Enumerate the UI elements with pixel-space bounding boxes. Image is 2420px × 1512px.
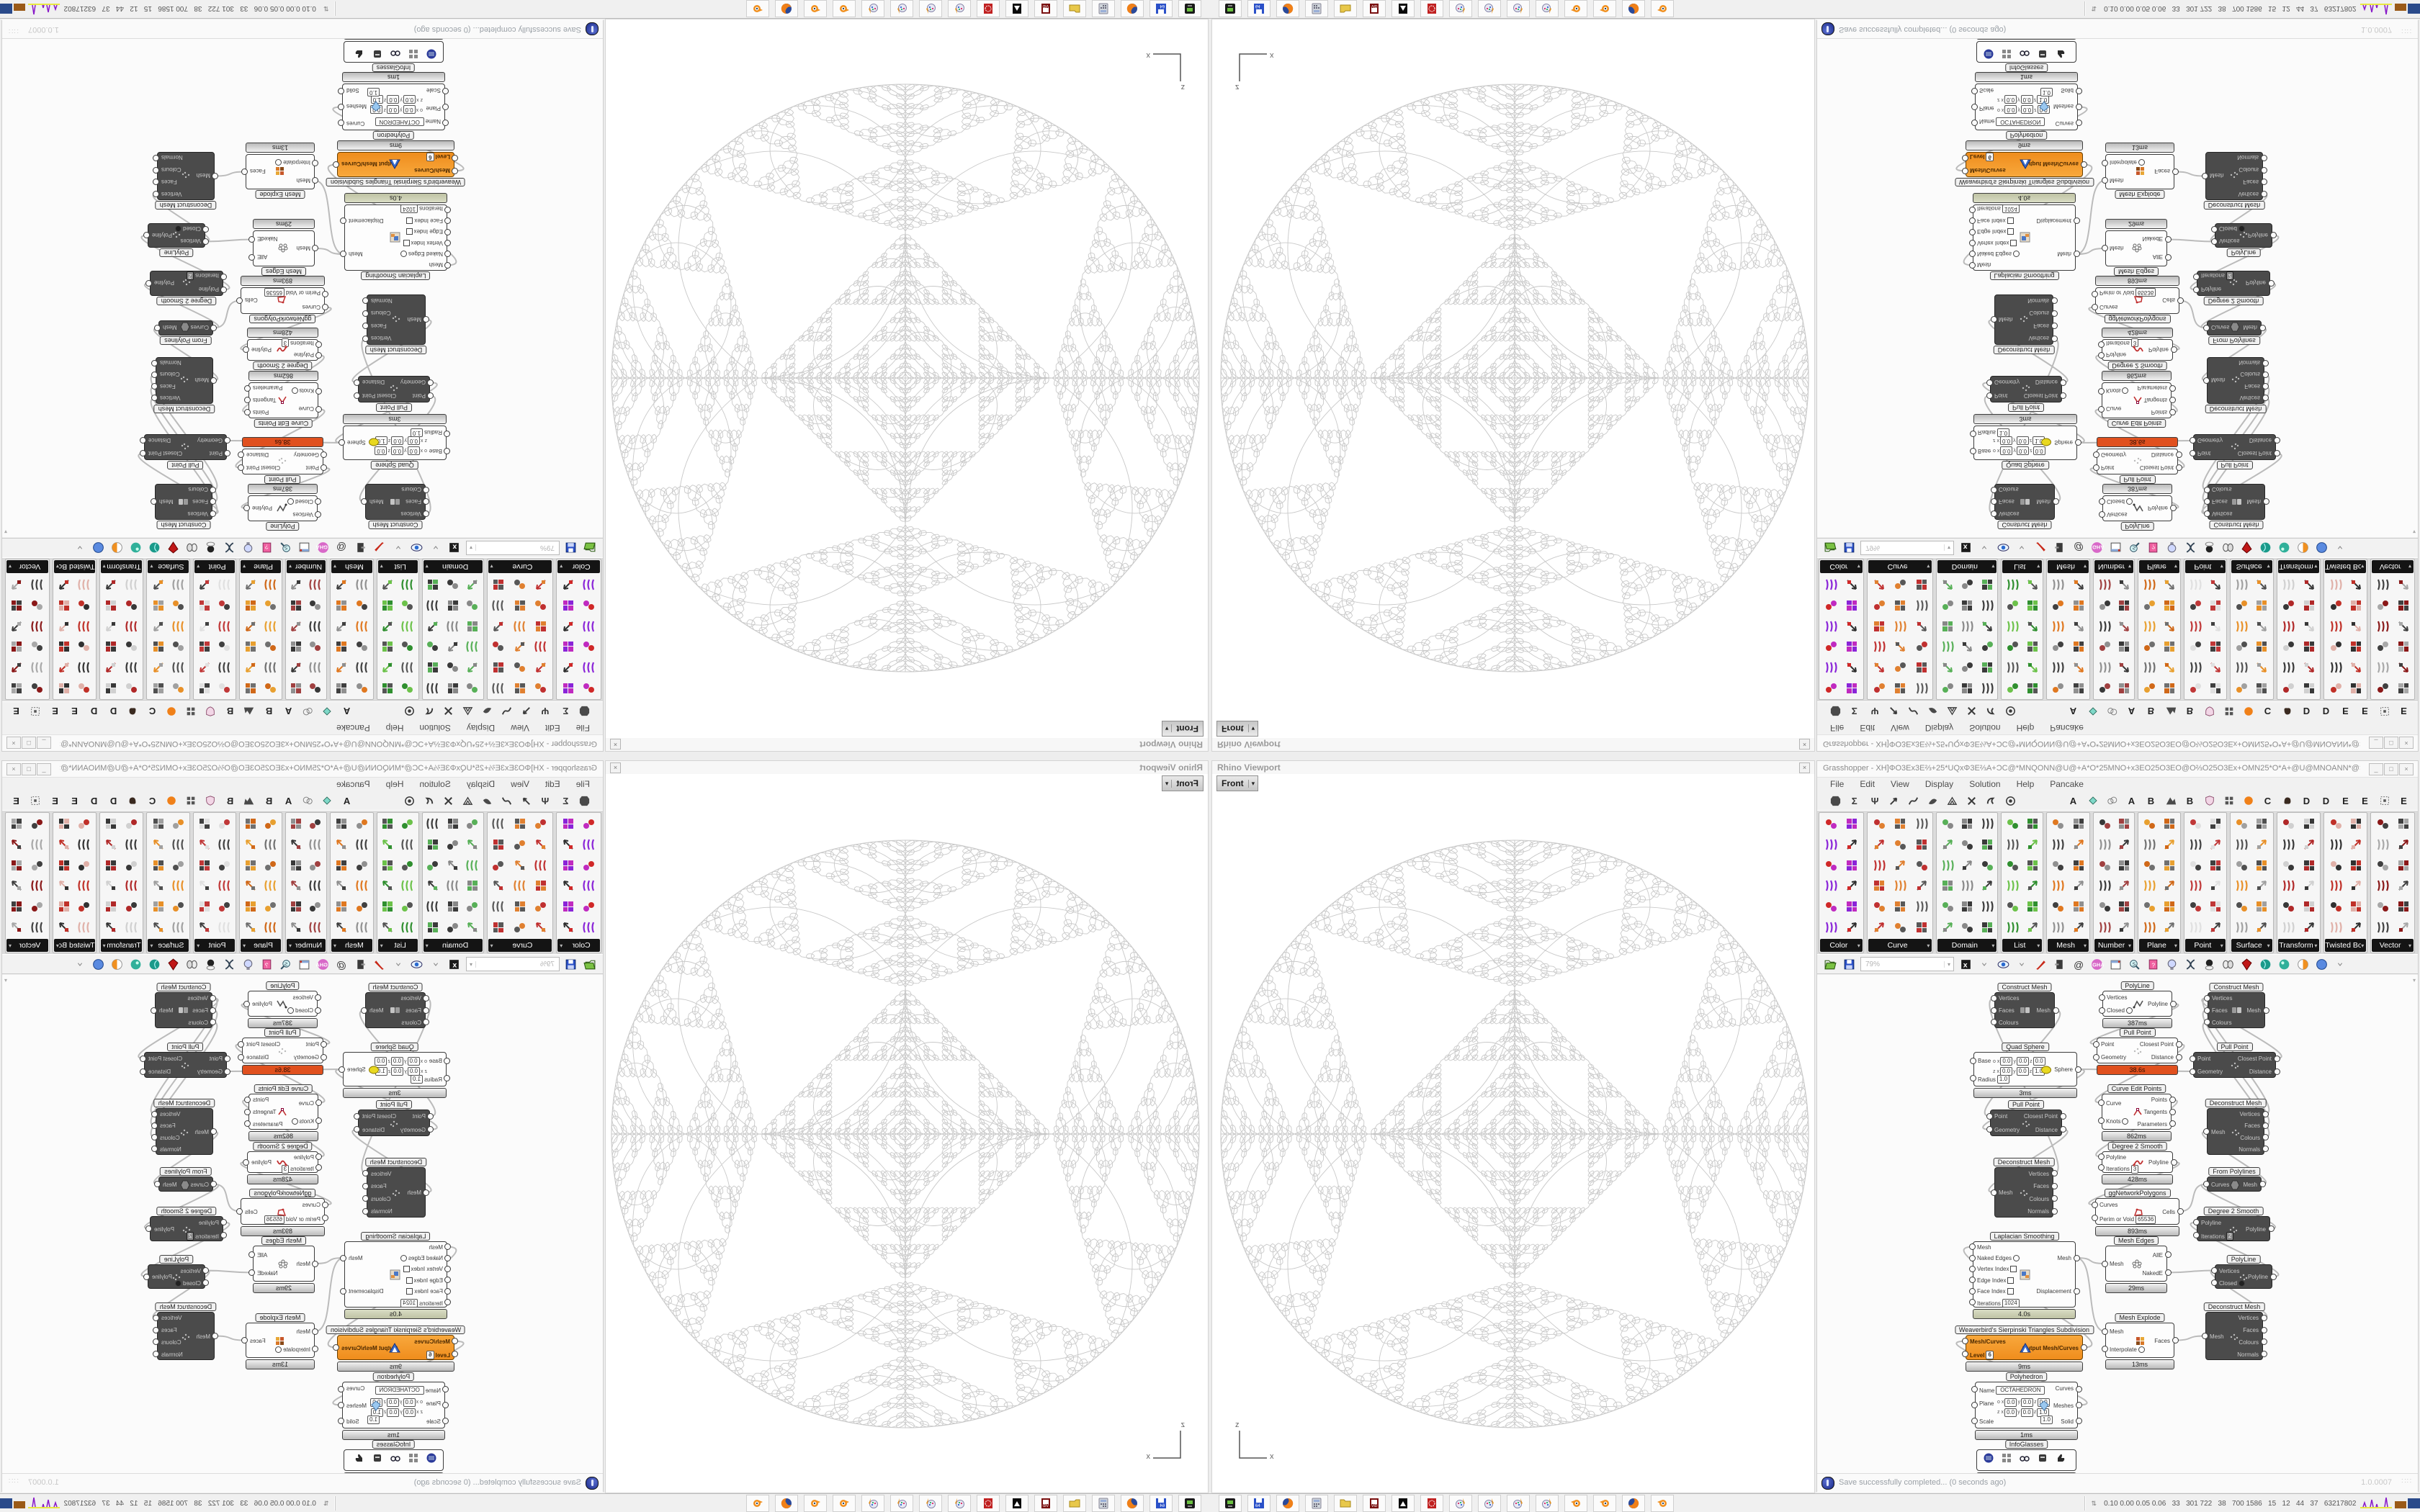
tab-plugin-13[interactable]: D <box>2316 793 2336 809</box>
section-label[interactable]: Twisted Box▾ <box>2325 560 2366 573</box>
component-icon[interactable] <box>27 657 48 678</box>
gh-node-qsph[interactable]: Baseo x0.0y0.0z0.0z x0.0y0.0z1.0Radius 1… <box>343 1052 447 1086</box>
component-icon[interactable] <box>351 896 372 917</box>
component-icon[interactable] <box>1889 575 1911 595</box>
output-port[interactable] <box>2259 1181 2266 1187</box>
component-icon[interactable] <box>443 678 462 698</box>
component-icon[interactable] <box>2159 636 2179 657</box>
component-icon[interactable] <box>331 616 351 636</box>
component-icon[interactable] <box>148 636 168 657</box>
component-icon[interactable] <box>378 575 398 595</box>
component-icon[interactable] <box>1911 595 1932 616</box>
gh-node-pp2[interactable]: Point Geometry Closest PointDistance <box>242 449 323 474</box>
output-port[interactable] <box>2081 161 2087 168</box>
component-icon[interactable] <box>2022 575 2042 595</box>
component-icon[interactable] <box>54 636 74 657</box>
toolbar-gem-red-icon[interactable] <box>166 541 181 555</box>
taskbar-app-blender-1[interactable] <box>833 1495 856 1512</box>
output-port[interactable] <box>338 120 344 126</box>
tab-intersect[interactable] <box>439 703 458 719</box>
component-icon[interactable] <box>423 678 443 698</box>
component-icon[interactable] <box>1820 678 1841 698</box>
output-port[interactable] <box>2261 1327 2267 1333</box>
component-icon[interactable] <box>1820 657 1841 678</box>
input-port[interactable] <box>423 487 429 493</box>
component-icon[interactable] <box>2022 917 2042 937</box>
tab-surface[interactable] <box>1923 793 1942 809</box>
component-icon[interactable] <box>378 595 398 616</box>
input-port[interactable] <box>312 1328 318 1335</box>
component-icon[interactable] <box>1977 814 1996 834</box>
component-icon[interactable] <box>27 834 48 855</box>
taskbar-app-krita-3[interactable] <box>890 0 913 17</box>
section-label[interactable]: Vector▾ <box>2372 560 2414 573</box>
tab-plugin-6[interactable]: B <box>2180 793 2200 809</box>
gh-node-pp3[interactable]: Point Geometry Closest PointDistance <box>2193 434 2276 460</box>
gh-node-d2s2[interactable]: Polyline Iterations 2Polyline <box>150 1216 223 1241</box>
component-icon[interactable] <box>2325 616 2345 636</box>
component-icon[interactable] <box>2251 678 2272 698</box>
input-port[interactable] <box>452 168 458 174</box>
toolbar-dna-cross-icon[interactable] <box>2183 957 2197 971</box>
component-icon[interactable] <box>2325 657 2345 678</box>
component-icon[interactable] <box>2002 575 2022 595</box>
component-icon[interactable] <box>2069 575 2089 595</box>
component-icon[interactable] <box>2278 876 2299 896</box>
section-label[interactable]: Mesh▾ <box>331 560 372 573</box>
toggle-checkbox[interactable] <box>2007 217 2014 224</box>
minimize-button[interactable]: _ <box>37 737 51 749</box>
zoom-level-combobox[interactable]: 79%▾ <box>466 541 560 555</box>
gh-node-dm2[interactable]: Mesh VerticesFacesColoursNormals <box>2207 357 2264 404</box>
component-icon[interactable] <box>2114 616 2133 636</box>
input-port[interactable] <box>423 1189 429 1196</box>
input-port[interactable] <box>2204 487 2210 493</box>
tab-plugin-10[interactable]: C <box>2258 793 2277 809</box>
tab-plugin-11[interactable] <box>123 703 143 719</box>
component-icon[interactable] <box>2114 678 2133 698</box>
grasshopper-canvas[interactable]: Construct MeshVertices Faces Colours Mes… <box>1817 39 2418 537</box>
toolbar-caret-icon[interactable] <box>391 541 405 555</box>
output-port[interactable] <box>333 161 339 168</box>
gh-node-pl1[interactable]: Vertices Closed Polyline <box>248 495 318 521</box>
output-port[interactable] <box>361 1007 367 1014</box>
component-icon[interactable] <box>101 595 122 616</box>
component-icon[interactable] <box>351 595 372 616</box>
taskbar-app-scribus[interactable] <box>977 1495 1000 1512</box>
menu-display[interactable]: Display <box>1925 723 1953 733</box>
component-icon[interactable] <box>1937 855 1957 876</box>
gh-node-pp1[interactable]: Point Geometry Closest PointDistance <box>1990 376 2062 402</box>
component-icon[interactable] <box>2346 814 2366 834</box>
gh-node-dm1[interactable]: Mesh VerticesFacesColoursNormals <box>367 1167 426 1218</box>
output-port[interactable] <box>154 1181 161 1187</box>
gh-node-wb[interactable]: Mesh/Curves Level 6Output Mesh/Curves <box>1966 152 2083 177</box>
component-icon[interactable] <box>2393 855 2414 876</box>
rhino-viewport-canvas[interactable] <box>606 21 1208 738</box>
output-port[interactable] <box>2074 1288 2080 1295</box>
component-icon[interactable] <box>27 616 48 636</box>
toolbar-zoom-extents-icon[interactable]: x <box>1958 957 1973 971</box>
component-icon[interactable] <box>1841 896 1862 917</box>
tab-plugin-5[interactable] <box>2161 703 2180 719</box>
tab-plugin-4[interactable]: B <box>259 703 279 719</box>
toolbar-exit-door-icon[interactable] <box>2052 541 2066 555</box>
input-port[interactable] <box>444 1266 451 1272</box>
gh-node-pp3[interactable]: Point Geometry Closest PointDistance <box>2193 1052 2276 1078</box>
component-icon[interactable] <box>1911 814 1932 834</box>
toolbar-ball-teal-icon[interactable] <box>2258 541 2272 555</box>
tab-surface[interactable] <box>478 703 497 719</box>
component-icon[interactable] <box>398 917 417 937</box>
menu-file[interactable]: File <box>576 723 590 733</box>
tab-maths[interactable]: Σ <box>555 703 575 719</box>
component-icon[interactable] <box>1958 834 1977 855</box>
tab-transform[interactable] <box>1981 793 2001 809</box>
component-icon[interactable] <box>2022 678 2042 698</box>
component-icon[interactable] <box>378 855 398 876</box>
tab-curve[interactable] <box>497 793 516 809</box>
gh-node-fpl[interactable]: Curves Mesh <box>158 320 213 336</box>
component-icon[interactable] <box>2251 616 2272 636</box>
input-port[interactable] <box>224 1068 230 1075</box>
output-port[interactable] <box>340 1288 346 1295</box>
gh-node-lap[interactable]: Mesh Naked Edges Vertex Index Edge Index… <box>1973 204 2076 271</box>
component-icon[interactable] <box>169 834 189 855</box>
component-icon[interactable] <box>101 917 122 937</box>
output-port[interactable] <box>243 1001 250 1007</box>
gh-node-wb[interactable]: Mesh/Curves Level 6Output Mesh/Curves <box>337 152 454 177</box>
section-label[interactable]: Curve▾ <box>1868 560 1932 573</box>
tab-params[interactable] <box>575 793 594 809</box>
component-icon[interactable] <box>101 678 122 698</box>
component-icon[interactable] <box>6 917 27 937</box>
tab-plugin-8[interactable] <box>2219 703 2238 719</box>
component-icon[interactable] <box>287 595 306 616</box>
toolbar-sketch-pen-icon[interactable] <box>372 541 387 555</box>
toolbar-ball-blue-icon[interactable] <box>91 957 106 971</box>
component-icon[interactable] <box>2002 616 2022 636</box>
component-icon[interactable] <box>1868 595 1890 616</box>
gh-node-dm1[interactable]: Mesh VerticesFacesColoursNormals <box>367 294 426 345</box>
output-port[interactable] <box>241 1337 248 1344</box>
component-icon[interactable] <box>1958 855 1977 876</box>
component-icon[interactable] <box>148 657 168 678</box>
toolbar-cylinders-icon[interactable] <box>2220 957 2235 971</box>
tab-plugin-4[interactable]: B <box>259 793 279 809</box>
tab-plugin-11[interactable] <box>123 793 143 809</box>
component-icon[interactable] <box>148 814 168 834</box>
toggle-circle[interactable] <box>400 251 407 257</box>
component-icon[interactable] <box>579 616 600 636</box>
tab-curve[interactable] <box>1904 703 1923 719</box>
input-port[interactable] <box>1962 168 1968 174</box>
component-icon[interactable] <box>423 876 443 896</box>
output-port[interactable] <box>2075 1066 2081 1073</box>
grasshopper-canvas[interactable]: Construct MeshVertices Faces Colours Mes… <box>2 39 603 537</box>
gh-node-pp2[interactable]: Point Geometry Closest PointDistance <box>2097 1038 2178 1063</box>
section-label[interactable]: Domain▾ <box>423 560 483 573</box>
input-port[interactable] <box>444 262 451 269</box>
grasshopper-titlebar[interactable]: Grasshopper - XH]ΦO3Ex3E⅔+25*UQxΦ3E⅔A+ƆC… <box>2 761 603 778</box>
component-icon[interactable] <box>122 876 143 896</box>
component-icon[interactable] <box>1977 855 1996 876</box>
component-icon[interactable] <box>462 876 482 896</box>
taskbar-app-krita-4[interactable] <box>1536 0 1559 17</box>
gh-node-wb[interactable]: Mesh/Curves Level 6Output Mesh/Curves <box>337 1335 454 1360</box>
toolbar-at-symbol-icon[interactable]: @ <box>2071 541 2085 555</box>
input-port[interactable] <box>210 377 217 384</box>
toolbar-gem-red-icon[interactable] <box>166 957 181 971</box>
component-icon[interactable] <box>351 917 372 937</box>
taskbar-app-folder[interactable] <box>1063 1495 1086 1512</box>
taskbar-app-image-viewer[interactable] <box>1391 1495 1415 1512</box>
component-icon[interactable] <box>1937 595 1957 616</box>
component-icon[interactable] <box>2094 917 2114 937</box>
component-icon[interactable] <box>1841 876 1862 896</box>
component-icon[interactable] <box>378 636 398 657</box>
gh-node-cep[interactable]: Curve Knots PointsTangentsParameters <box>2102 382 2172 418</box>
component-icon[interactable] <box>2139 855 2159 876</box>
component-icon[interactable] <box>398 595 417 616</box>
component-icon[interactable] <box>2069 636 2089 657</box>
component-icon[interactable] <box>2278 657 2299 678</box>
input-port[interactable] <box>2102 1328 2108 1335</box>
taskbar-app-blender-3[interactable] <box>1651 1495 1674 1512</box>
gh-node-ggn[interactable]: Curves Perim or Void 65536Cells <box>2095 287 2179 314</box>
value-box[interactable]: 6 <box>426 1351 434 1359</box>
component-icon[interactable] <box>531 917 552 937</box>
tab-plugin-4[interactable]: B <box>2141 793 2161 809</box>
gh-node-me[interactable]: Mesh AllENakedE <box>2105 230 2167 266</box>
close-button[interactable]: × <box>2399 737 2414 749</box>
component-icon[interactable] <box>1889 814 1911 834</box>
input-port[interactable] <box>202 226 209 233</box>
component-icon[interactable] <box>378 657 398 678</box>
component-icon[interactable] <box>2346 616 2366 636</box>
toolbar-window-new-icon[interactable] <box>297 957 312 971</box>
component-icon[interactable] <box>557 678 578 698</box>
output-port[interactable] <box>145 1225 152 1232</box>
component-icon[interactable] <box>2278 896 2299 917</box>
component-icon[interactable] <box>2231 855 2251 876</box>
component-icon[interactable] <box>2002 636 2022 657</box>
component-icon[interactable] <box>531 896 552 917</box>
toolbar-sketch-pen-icon[interactable] <box>2033 541 2048 555</box>
component-icon[interactable] <box>2139 595 2159 616</box>
component-icon[interactable] <box>2205 917 2226 937</box>
input-port[interactable] <box>220 1232 227 1238</box>
toolbar-at-symbol-icon[interactable]: @ <box>335 957 349 971</box>
component-icon[interactable] <box>54 834 74 855</box>
component-icon[interactable] <box>398 896 417 917</box>
component-icon[interactable] <box>2048 855 2068 876</box>
component-icon[interactable] <box>423 814 443 834</box>
input-port[interactable] <box>423 1007 429 1014</box>
component-icon[interactable] <box>261 814 281 834</box>
component-icon[interactable] <box>462 616 482 636</box>
component-icon[interactable] <box>148 678 168 698</box>
component-icon[interactable] <box>122 896 143 917</box>
tab-plugin-6[interactable]: B <box>220 793 240 809</box>
input-port[interactable] <box>2092 291 2098 297</box>
output-port[interactable] <box>2171 1159 2177 1166</box>
component-icon[interactable] <box>2372 575 2393 595</box>
tab-curve[interactable] <box>1904 793 1923 809</box>
menu-edit[interactable]: Edit <box>545 723 560 733</box>
taskbar-app-folder[interactable] <box>1334 0 1357 17</box>
component-icon[interactable] <box>2278 814 2299 834</box>
component-icon[interactable] <box>462 855 482 876</box>
component-icon[interactable] <box>2393 616 2414 636</box>
tab-plugin-1[interactable] <box>2083 703 2102 719</box>
component-icon[interactable] <box>27 896 48 917</box>
tab-plugin-16[interactable] <box>2375 703 2394 719</box>
tab-plugin-5[interactable] <box>2161 793 2180 809</box>
component-icon[interactable] <box>378 896 398 917</box>
component-icon[interactable] <box>1958 595 1977 616</box>
taskbar-app-blender-3[interactable] <box>746 0 769 17</box>
output-port[interactable] <box>339 1066 345 1073</box>
input-port[interactable] <box>1969 1266 1976 1272</box>
component-icon[interactable] <box>122 575 143 595</box>
gh-node-mex[interactable]: Mesh Interpolate Faces <box>2105 1323 2174 1358</box>
tab-plugin-11[interactable] <box>2277 793 2297 809</box>
component-icon[interactable] <box>215 876 235 896</box>
component-icon[interactable] <box>557 896 578 917</box>
input-port[interactable] <box>224 1056 230 1062</box>
component-icon[interactable] <box>1841 575 1862 595</box>
component-icon[interactable] <box>241 876 261 896</box>
toolbar-sketch-pen-icon[interactable] <box>2033 957 2048 971</box>
gh-node-info[interactable] <box>1976 41 2076 63</box>
input-port[interactable] <box>2099 1007 2105 1014</box>
component-icon[interactable] <box>2114 896 2133 917</box>
input-port[interactable] <box>2203 377 2210 384</box>
canvas-scroll-arrow-icon[interactable]: ▾ <box>2413 977 2416 984</box>
component-icon[interactable] <box>579 896 600 917</box>
taskbar-app-krita-3[interactable] <box>1507 0 1530 17</box>
component-icon[interactable] <box>398 616 417 636</box>
component-icon[interactable] <box>509 636 531 657</box>
component-icon[interactable] <box>1841 855 1862 876</box>
component-icon[interactable] <box>2185 657 2205 678</box>
component-icon[interactable] <box>2278 575 2299 595</box>
component-icon[interactable] <box>169 636 189 657</box>
menu-view[interactable]: View <box>1891 723 1909 733</box>
output-port[interactable] <box>2262 372 2269 378</box>
taskbar-app-firefox[interactable] <box>1276 1495 1299 1512</box>
input-port[interactable] <box>444 1288 451 1295</box>
maximize-button[interactable]: □ <box>2384 763 2398 775</box>
menu-display[interactable]: Display <box>1925 779 1953 789</box>
component-icon[interactable] <box>462 657 482 678</box>
component-icon[interactable] <box>331 814 351 834</box>
menu-help[interactable]: Help <box>386 779 404 789</box>
component-icon[interactable] <box>423 616 443 636</box>
component-icon[interactable] <box>509 917 531 937</box>
toolbar-open-file-icon[interactable] <box>1823 957 1837 971</box>
component-icon[interactable] <box>2298 575 2319 595</box>
gh-node-poly[interactable]: Name OCTAHEDRONPlaneo x0.0y0.0z0.0z x0.0… <box>342 1382 445 1428</box>
output-port[interactable] <box>2177 1208 2184 1215</box>
input-port[interactable] <box>2098 1099 2105 1106</box>
component-icon[interactable] <box>2094 834 2114 855</box>
component-icon[interactable] <box>2114 876 2133 896</box>
output-port[interactable] <box>2176 1054 2182 1061</box>
component-icon[interactable] <box>1977 595 1996 616</box>
component-icon[interactable] <box>509 896 531 917</box>
component-icon[interactable] <box>148 616 168 636</box>
component-icon[interactable] <box>1977 575 1996 595</box>
component-icon[interactable] <box>1841 595 1862 616</box>
gh-node-d2s2[interactable]: Polyline Iterations 2Polyline <box>2197 1216 2270 1241</box>
component-icon[interactable] <box>2139 896 2159 917</box>
component-icon[interactable] <box>488 917 510 937</box>
component-icon[interactable] <box>2298 896 2319 917</box>
close-button[interactable]: × <box>2399 763 2414 775</box>
viewport-close-icon[interactable]: × <box>610 762 621 773</box>
component-icon[interactable] <box>215 834 235 855</box>
component-icon[interactable] <box>306 657 326 678</box>
toolbar-preview-eye-icon[interactable] <box>410 541 424 555</box>
taskbar-app-scribus[interactable] <box>977 0 1000 17</box>
component-icon[interactable] <box>194 814 215 834</box>
component-icon[interactable] <box>2205 616 2226 636</box>
input-port[interactable] <box>2099 994 2105 1001</box>
toolbar-zoom-extents-icon[interactable]: x <box>1958 541 1973 555</box>
component-icon[interactable] <box>1820 834 1841 855</box>
component-icon[interactable] <box>287 876 306 896</box>
output-port[interactable] <box>2051 310 2058 317</box>
taskbar-app-firefox-2[interactable] <box>775 1495 798 1512</box>
toggle-circle[interactable] <box>287 498 294 505</box>
component-icon[interactable] <box>1868 896 1890 917</box>
component-icon[interactable] <box>169 896 189 917</box>
component-icon[interactable] <box>579 855 600 876</box>
component-icon[interactable] <box>2325 636 2345 657</box>
component-icon[interactable] <box>2346 834 2366 855</box>
component-icon[interactable] <box>531 834 552 855</box>
output-port[interactable] <box>2165 1269 2172 1276</box>
component-icon[interactable] <box>27 678 48 698</box>
taskbar-app-krita-2[interactable] <box>1478 0 1501 17</box>
component-icon[interactable] <box>331 917 351 937</box>
input-port[interactable] <box>220 287 227 293</box>
component-icon[interactable] <box>2372 616 2393 636</box>
component-icon[interactable] <box>6 636 27 657</box>
output-port[interactable] <box>2274 1068 2280 1075</box>
tab-plugin-8[interactable] <box>181 793 201 809</box>
toggle-checkbox[interactable] <box>406 1277 413 1284</box>
tab-plugin-7[interactable] <box>201 703 220 719</box>
maximize-button[interactable]: □ <box>22 737 36 749</box>
component-icon[interactable] <box>2048 876 2068 896</box>
component-icon[interactable] <box>287 678 306 698</box>
section-label[interactable]: Point▾ <box>194 939 235 952</box>
taskbar-app-scribus[interactable] <box>1420 0 1443 17</box>
tab-plugin-4[interactable]: B <box>2141 703 2161 719</box>
taskbar-app-krita-4[interactable] <box>1536 1495 1559 1512</box>
component-icon[interactable] <box>579 678 600 698</box>
component-icon[interactable] <box>462 834 482 855</box>
component-icon[interactable] <box>194 855 215 876</box>
component-icon[interactable] <box>398 834 417 855</box>
component-icon[interactable] <box>2251 896 2272 917</box>
toolbar-ball-dark-icon[interactable] <box>2202 957 2216 971</box>
value-box[interactable]: 6 <box>1986 1351 1993 1359</box>
tab-plugin-10[interactable]: C <box>143 703 162 719</box>
